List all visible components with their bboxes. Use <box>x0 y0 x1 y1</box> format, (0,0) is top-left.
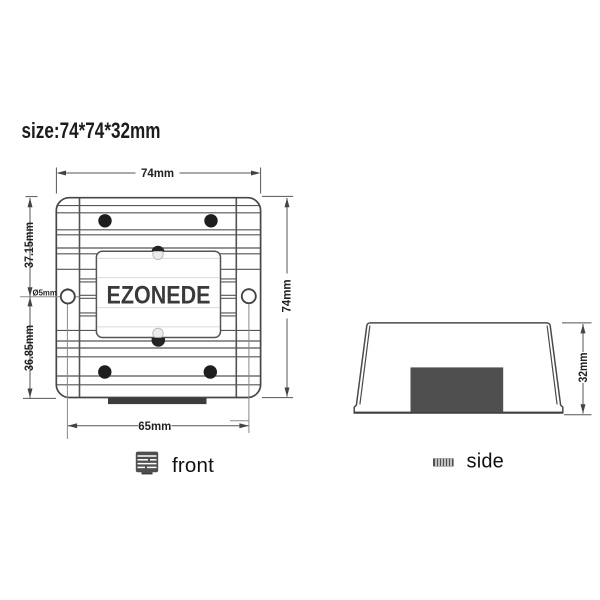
svg-text:side: side <box>467 451 505 473</box>
svg-text:EZONEDE: EZONEDE <box>107 282 211 310</box>
svg-text:36.85mm: 36.85mm <box>22 325 36 371</box>
svg-text:74mm: 74mm <box>280 280 294 313</box>
svg-text:front: front <box>172 454 214 477</box>
svg-text:size:74*74*32mm: size:74*74*32mm <box>22 118 161 143</box>
svg-text:37.15mm: 37.15mm <box>22 222 36 268</box>
svg-text:74mm: 74mm <box>141 166 174 180</box>
svg-text:Ø5mm: Ø5mm <box>33 288 57 297</box>
svg-text:32mm: 32mm <box>578 353 590 383</box>
svg-text:65mm: 65mm <box>138 419 171 433</box>
